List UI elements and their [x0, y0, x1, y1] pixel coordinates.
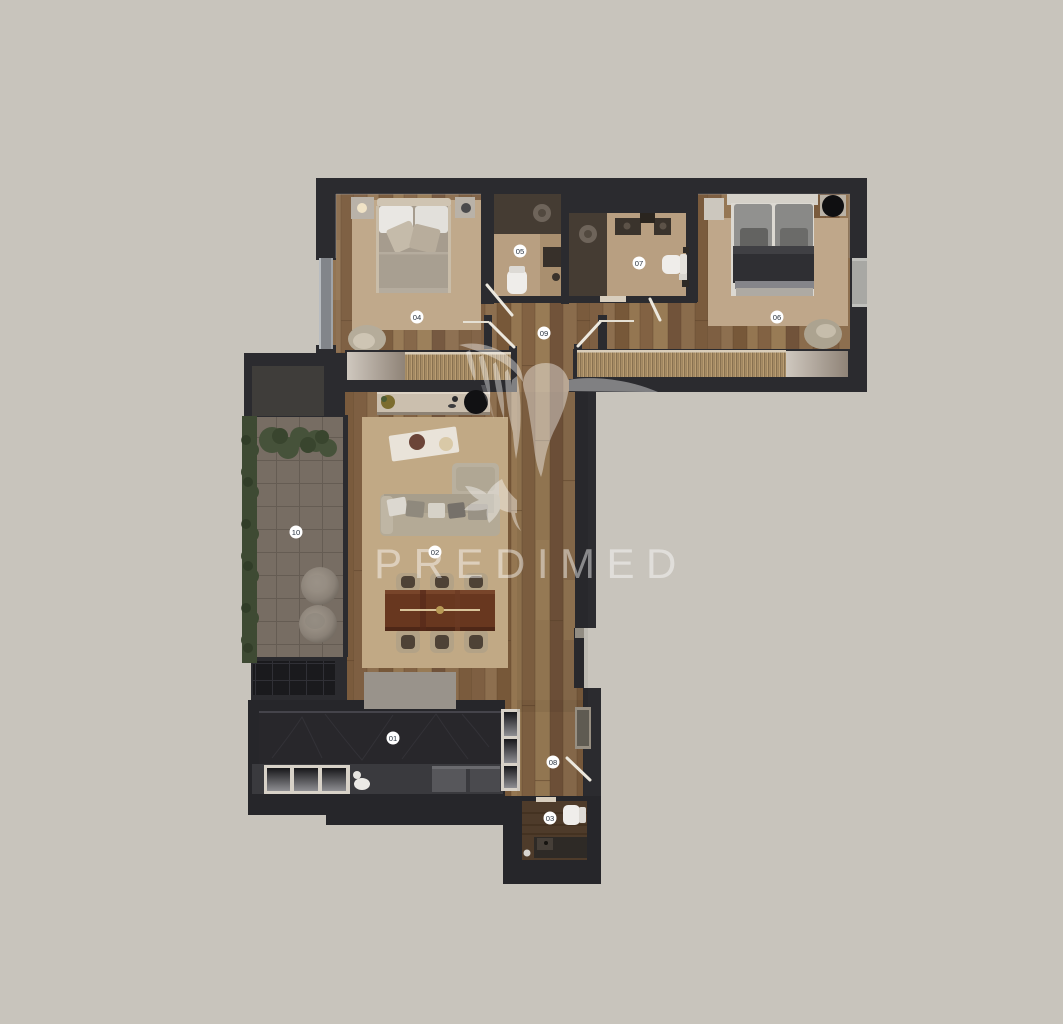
svg-text:05: 05 [516, 247, 524, 256]
svg-text:02: 02 [431, 548, 439, 557]
svg-text:01: 01 [389, 734, 397, 743]
svg-text:07: 07 [635, 259, 643, 268]
svg-text:10: 10 [292, 528, 300, 537]
svg-text:04: 04 [413, 313, 421, 322]
svg-text:08: 08 [549, 758, 557, 767]
svg-text:09: 09 [540, 329, 548, 338]
svg-text:06: 06 [773, 313, 781, 322]
svg-text:PREDIMED: PREDIMED [374, 540, 688, 587]
svg-text:03: 03 [546, 814, 554, 823]
